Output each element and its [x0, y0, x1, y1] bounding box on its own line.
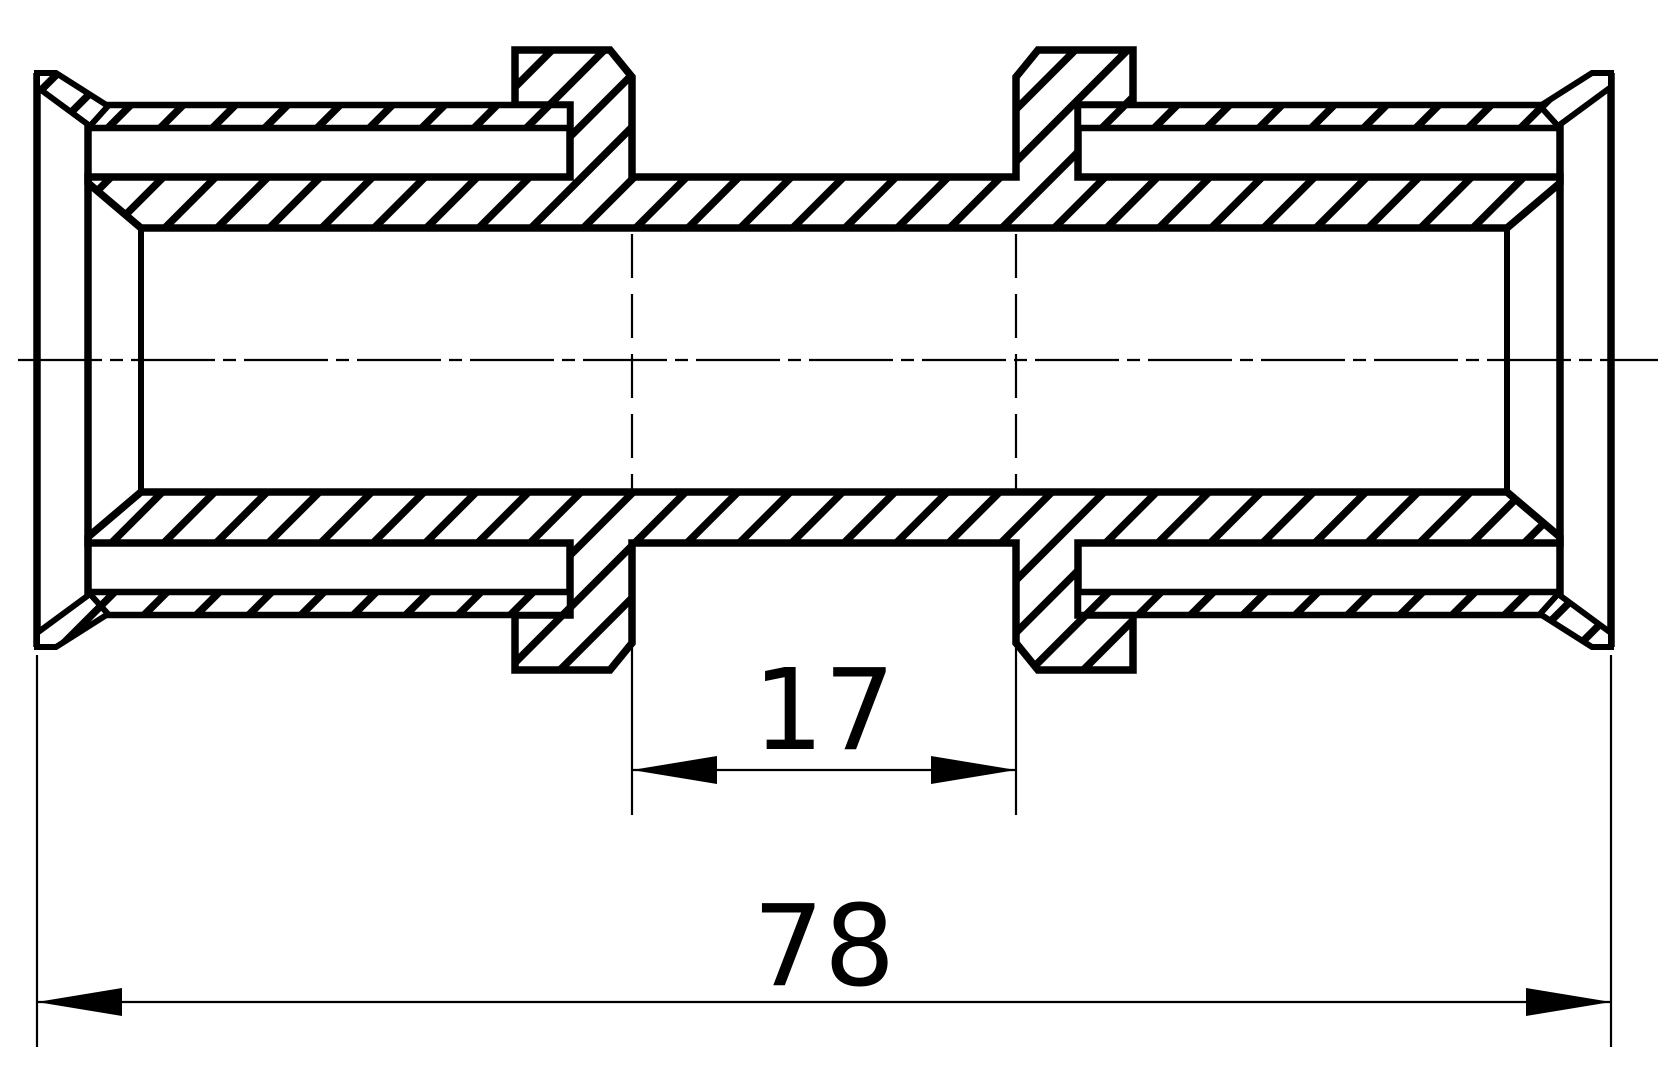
sleeve-bottom-left — [90, 592, 570, 615]
sleeve-top-right — [1078, 105, 1558, 128]
dim78-label: 78 — [753, 882, 896, 1012]
sleeve-top-left — [90, 105, 570, 128]
technical-drawing-page: 17 78 — [0, 0, 1677, 1080]
dim17-label: 17 — [753, 646, 896, 776]
technical-drawing-canvas: 17 78 — [0, 0, 1677, 1080]
sleeve-bottom-right — [1078, 592, 1558, 615]
